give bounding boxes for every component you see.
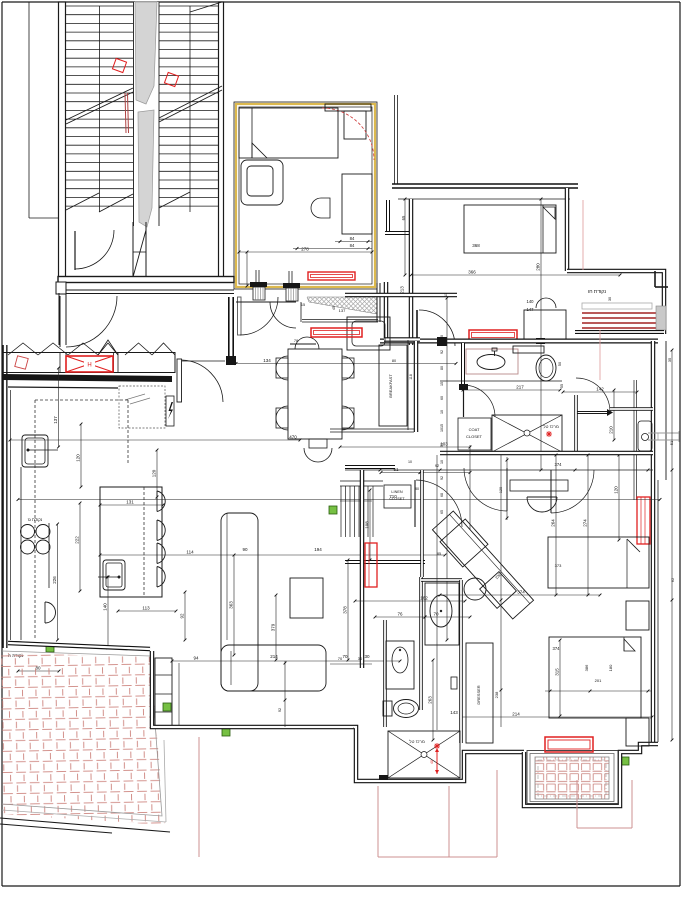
svg-text:118: 118 [409, 374, 413, 380]
svg-text:BREAKFAST: BREAKFAST [388, 374, 393, 398]
svg-text:35: 35 [667, 357, 672, 362]
svg-text:נקודת חו: נקודת חו [588, 289, 606, 295]
svg-text:114: 114 [186, 550, 194, 555]
svg-text:92: 92 [180, 613, 185, 619]
svg-text:מרכז טל: מרכז טל [543, 424, 559, 429]
svg-text:10: 10 [444, 293, 448, 297]
svg-text:201: 201 [595, 678, 602, 683]
svg-text:1015: 1015 [440, 424, 444, 432]
svg-text:226: 226 [52, 576, 57, 584]
svg-text:51: 51 [440, 443, 444, 447]
svg-text:140: 140 [103, 603, 108, 611]
svg-text:214: 214 [270, 654, 278, 659]
svg-text:470: 470 [289, 435, 297, 440]
svg-text:120: 120 [152, 469, 157, 477]
svg-text:142: 142 [596, 387, 604, 392]
svg-text:90: 90 [242, 547, 248, 552]
svg-text:84: 84 [350, 236, 355, 241]
svg-text:264: 264 [551, 519, 556, 527]
svg-text:92: 92 [440, 350, 444, 354]
svg-text:137: 137 [53, 416, 58, 424]
svg-text:50: 50 [558, 362, 562, 366]
svg-text:374: 374 [553, 646, 561, 651]
svg-text:108: 108 [365, 521, 370, 529]
svg-text:30: 30 [358, 656, 363, 661]
svg-text:70: 70 [342, 654, 348, 659]
svg-text:374: 374 [555, 462, 563, 467]
svg-text:80: 80 [392, 359, 396, 363]
svg-text:84: 84 [350, 243, 355, 248]
svg-text:10: 10 [440, 410, 444, 414]
svg-text:DRESSER: DRESSER [476, 685, 481, 704]
svg-text:214: 214 [512, 712, 520, 717]
svg-text:78: 78 [294, 339, 298, 343]
svg-text:374: 374 [517, 590, 525, 595]
svg-text:315: 315 [555, 668, 560, 676]
svg-text:366: 366 [468, 270, 476, 275]
svg-text:62: 62 [670, 577, 675, 582]
svg-text:379: 379 [271, 623, 276, 631]
svg-text:CLOSET: CLOSET [389, 497, 405, 501]
svg-text:162: 162 [420, 596, 428, 601]
svg-text:70: 70 [338, 656, 343, 661]
svg-text:30: 30 [364, 654, 370, 659]
svg-text:10: 10 [440, 460, 444, 464]
svg-text:40: 40 [430, 760, 434, 764]
svg-text:80: 80 [415, 487, 419, 491]
svg-text:מרכז טל: מרכז טל [409, 739, 425, 744]
svg-text:140: 140 [527, 299, 535, 304]
svg-text:238: 238 [494, 691, 499, 698]
svg-text:65: 65 [401, 215, 406, 220]
svg-text:378: 378 [343, 606, 348, 614]
svg-text:143: 143 [450, 710, 458, 715]
svg-text:147: 147 [527, 307, 535, 312]
svg-text:60: 60 [440, 396, 444, 400]
svg-text:180: 180 [608, 664, 613, 671]
svg-text:45: 45 [332, 306, 336, 310]
svg-text:217: 217 [516, 385, 524, 390]
svg-text:386: 386 [584, 664, 589, 671]
svg-text:55: 55 [560, 384, 564, 388]
svg-text:263: 263 [428, 696, 433, 704]
svg-text:15: 15 [440, 382, 444, 386]
svg-text:210: 210 [609, 426, 614, 434]
svg-text:213: 213 [400, 286, 405, 294]
svg-text:30: 30 [608, 297, 612, 301]
svg-text:COAT: COAT [469, 427, 480, 432]
svg-text:LINEN: LINEN [391, 490, 402, 494]
svg-text:80: 80 [440, 366, 444, 370]
svg-text:194: 194 [314, 547, 322, 552]
svg-text:280: 280 [536, 263, 541, 271]
svg-text:363: 363 [229, 601, 234, 609]
svg-text:51: 51 [669, 440, 674, 445]
svg-text:134: 134 [263, 358, 271, 363]
svg-text:נקודת גז: נקודת גז [28, 517, 43, 522]
svg-text:10: 10 [408, 460, 412, 464]
svg-text:137: 137 [339, 308, 346, 313]
svg-text:222: 222 [75, 536, 80, 544]
svg-text:94: 94 [193, 656, 199, 661]
svg-text:113: 113 [142, 606, 150, 611]
svg-text:92: 92 [278, 708, 282, 712]
svg-text:274: 274 [583, 519, 588, 527]
svg-text:92: 92 [440, 476, 444, 480]
svg-text:368: 368 [472, 243, 480, 248]
svg-text:120: 120 [76, 454, 81, 462]
svg-text:70: 70 [433, 612, 439, 617]
svg-text:H: H [87, 363, 91, 369]
svg-text:CLOSET: CLOSET [466, 434, 483, 439]
svg-text:131: 131 [126, 500, 134, 505]
svg-text:68: 68 [440, 493, 444, 497]
svg-text:15: 15 [301, 303, 305, 307]
svg-text:278: 278 [301, 247, 309, 252]
svg-text:65: 65 [440, 510, 444, 514]
svg-text:85: 85 [437, 552, 441, 556]
svg-text:76: 76 [397, 612, 403, 617]
svg-text:51: 51 [393, 467, 399, 472]
svg-text:120: 120 [614, 486, 619, 494]
svg-text:10: 10 [440, 335, 444, 339]
